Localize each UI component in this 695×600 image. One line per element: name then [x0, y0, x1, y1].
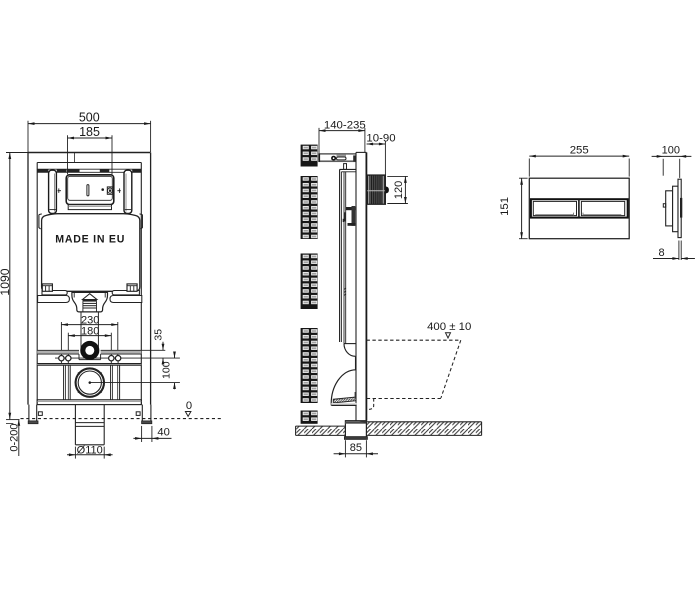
- svg-text:120: 120: [393, 181, 405, 199]
- svg-text:MADE IN EU: MADE IN EU: [55, 234, 125, 246]
- svg-text:400 ± 10: 400 ± 10: [427, 321, 471, 333]
- svg-text:100: 100: [160, 361, 172, 379]
- svg-text:151: 151: [499, 197, 511, 216]
- svg-text:0: 0: [186, 400, 192, 412]
- svg-text:255: 255: [570, 144, 589, 156]
- svg-text:85: 85: [350, 442, 362, 454]
- svg-text:10-90: 10-90: [366, 133, 395, 145]
- svg-text:230: 230: [81, 314, 99, 326]
- svg-text:500: 500: [79, 111, 100, 125]
- svg-text:180: 180: [81, 326, 99, 338]
- svg-text:0-200: 0-200: [8, 424, 20, 452]
- svg-text:185: 185: [79, 125, 100, 139]
- svg-text:8: 8: [658, 247, 664, 259]
- svg-text:100: 100: [662, 145, 680, 157]
- svg-text:140-235: 140-235: [324, 119, 366, 131]
- svg-text:35: 35: [152, 329, 164, 341]
- svg-text:40: 40: [157, 426, 169, 438]
- svg-text:1090: 1090: [0, 268, 12, 295]
- svg-text:Ø110: Ø110: [77, 445, 103, 457]
